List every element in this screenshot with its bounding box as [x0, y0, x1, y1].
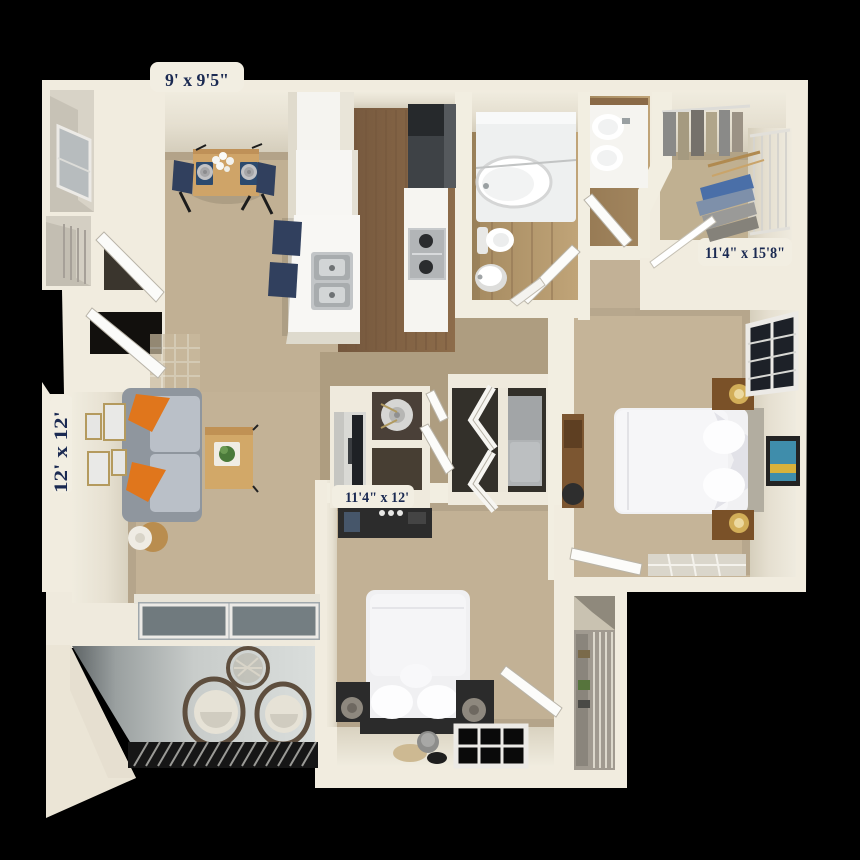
svg-text:9' x 9'5": 9' x 9'5": [165, 70, 229, 90]
svg-text:11'4" x 15'8": 11'4" x 15'8": [705, 245, 785, 262]
svg-text:12' x 12': 12' x 12': [51, 411, 72, 493]
svg-text:11'4" x 12': 11'4" x 12': [345, 490, 409, 506]
